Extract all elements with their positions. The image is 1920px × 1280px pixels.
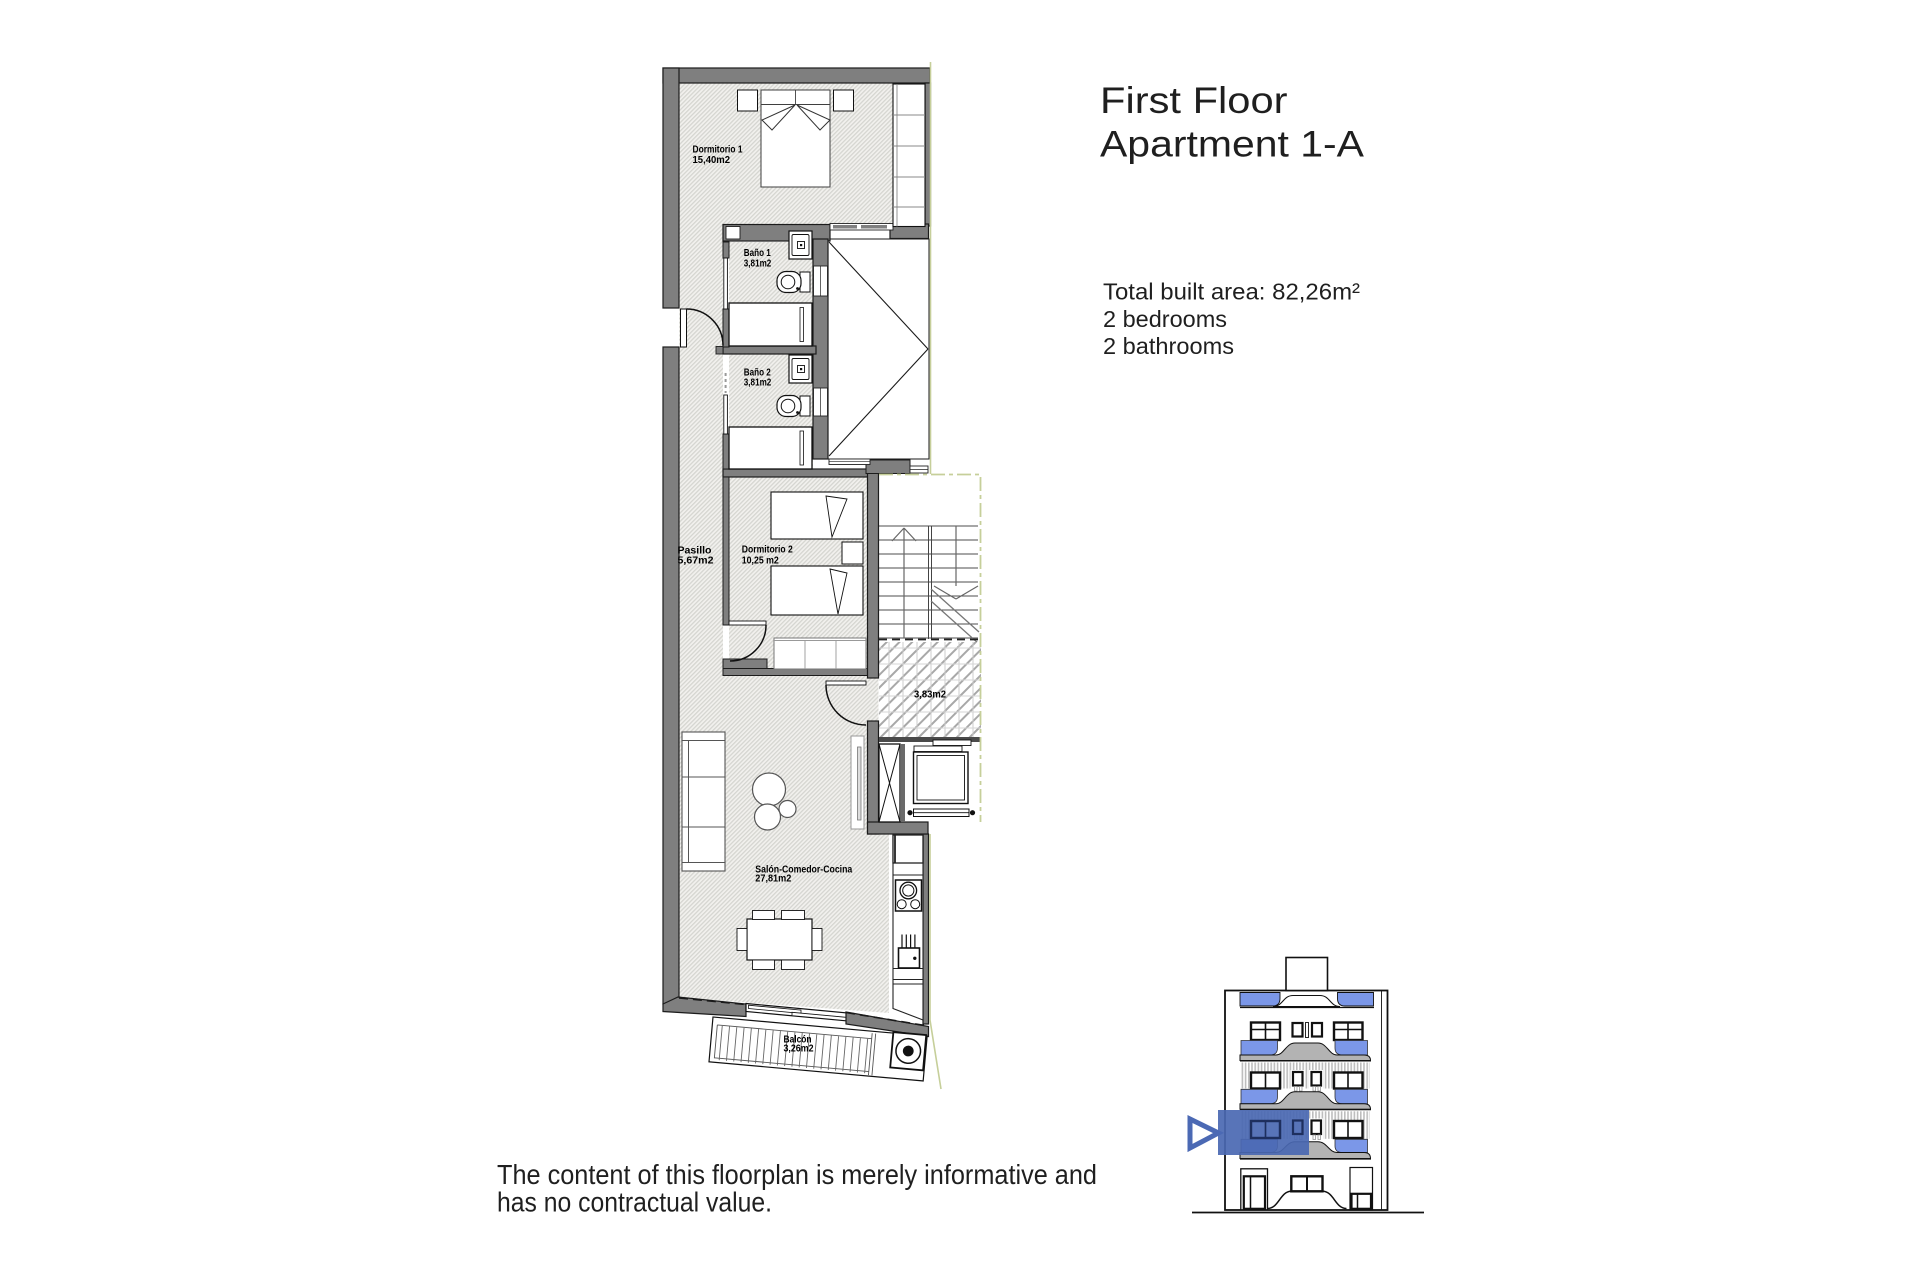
svg-text:Dormitorio 2: Dormitorio 2 <box>742 545 793 556</box>
svg-text:27,81m2: 27,81m2 <box>755 873 791 884</box>
svg-text:3,83m2: 3,83m2 <box>914 689 946 700</box>
svg-text:Total built area: 82,26m²: Total built area: 82,26m² <box>1103 279 1360 305</box>
svg-text:Dormitorio 1: Dormitorio 1 <box>693 144 743 155</box>
svg-text:Apartment 1-A: Apartment 1-A <box>1100 124 1364 165</box>
svg-text:2 bedrooms: 2 bedrooms <box>1103 306 1227 332</box>
svg-text:10,25 m2: 10,25 m2 <box>742 555 779 566</box>
svg-text:15,40m2: 15,40m2 <box>693 155 731 166</box>
svg-text:First Floor: First Floor <box>1100 80 1288 121</box>
svg-text:3,81m2: 3,81m2 <box>744 259 772 270</box>
svg-text:3,81m2: 3,81m2 <box>744 377 772 388</box>
svg-text:Baño 1: Baño 1 <box>744 248 771 259</box>
svg-text:2 bathrooms: 2 bathrooms <box>1103 333 1234 359</box>
svg-text:The content of this floorplan: The content of this floorplan is merely … <box>497 1159 1097 1190</box>
svg-text:5,67m2: 5,67m2 <box>678 555 714 566</box>
svg-text:3,26m2: 3,26m2 <box>784 1044 814 1055</box>
svg-text:has no contractual value.: has no contractual value. <box>497 1187 772 1218</box>
